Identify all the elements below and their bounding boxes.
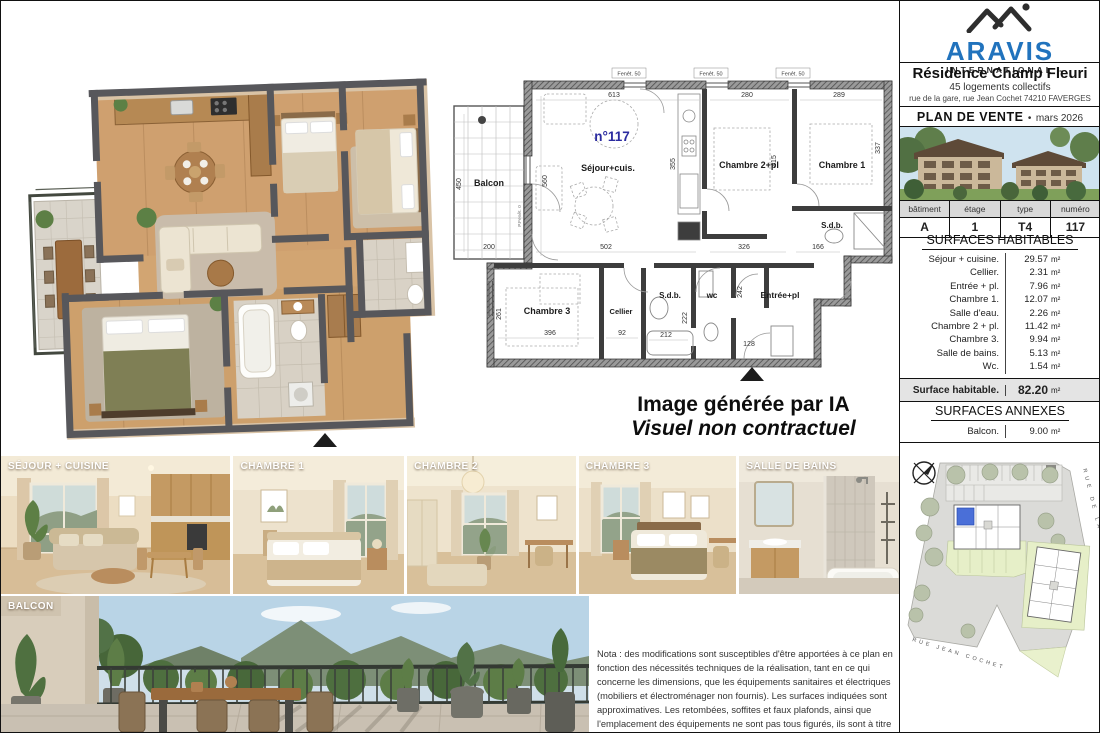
plan2d-kitchen — [678, 94, 700, 240]
room-cellier: Cellier — [610, 307, 633, 316]
divider — [900, 106, 1100, 107]
toilet — [290, 320, 307, 341]
surface-row: Chambre 1.12.07m² — [900, 293, 1100, 306]
porte-fenetre-label: P.Fenêt. 0 — [517, 205, 523, 227]
room-sdb-bottom: S.d.b. — [659, 291, 681, 300]
photo-chambre1: CHAMBRE 1 — [233, 456, 404, 594]
nightstand — [367, 548, 387, 570]
orientation-triangle — [313, 433, 337, 447]
room-chambre2: Chambre 2+pl — [719, 160, 779, 170]
floorplan-3d-body — [26, 82, 435, 438]
unit-info-header: type — [1001, 201, 1051, 218]
photo-sdb-scene — [739, 456, 899, 594]
svg-text:128: 128 — [743, 341, 755, 348]
photo-label: CHAMBRE 2 — [414, 461, 478, 472]
svg-text:326: 326 — [738, 244, 750, 251]
divider — [900, 442, 1100, 443]
floorplan-3d-render — [7, 3, 443, 453]
document-type: PLAN DE VENTE — [917, 110, 1024, 124]
photo-salle-de-bains: SALLE DE BAINS — [739, 456, 899, 594]
svg-text:212: 212 — [660, 332, 672, 339]
bathtub — [238, 303, 277, 378]
photo-label: BALCON — [8, 601, 54, 612]
bed-foot — [427, 564, 487, 586]
unit-info-header: étage — [950, 201, 1000, 218]
divider — [900, 62, 1100, 63]
document-date: mars 2026 — [1036, 113, 1083, 124]
surface-row: Séjour + cuisine.29.57m² — [900, 253, 1100, 266]
svg-text:502: 502 — [600, 244, 612, 251]
photo-label: CHAMBRE 3 — [586, 461, 650, 472]
brand-name: ARAVIS — [900, 38, 1100, 64]
surface-row: Salle de bains.5.13m² — [900, 347, 1100, 360]
room-balcon: Balcon — [474, 178, 504, 188]
svg-text:200: 200 — [483, 244, 495, 251]
room-sejour: Séjour+cuis. — [581, 163, 635, 173]
highlighted-unit — [957, 508, 974, 525]
floorplan-2d: Fenêt. 50 Fenêt. 50 Fenêt. 50 P.Fenêt. 0 — [444, 56, 899, 391]
residence-address: rue de la gare, rue Jean Cochet 74210 FA… — [900, 94, 1100, 103]
window-label: Fenêt. 50 — [617, 72, 640, 78]
room-wc: wc — [706, 291, 718, 300]
unit-number: n°117 — [594, 129, 629, 144]
photo-balcon: BALCON — [1, 596, 589, 732]
sidebar: ARAVIS - INTERNATIONAL - Résidence Champ… — [899, 1, 1100, 732]
document-separator: • — [1028, 113, 1032, 124]
surfaces-annexes-title: SURFACES ANNEXES — [900, 404, 1100, 421]
aravis-logo-icon — [963, 3, 1037, 33]
sofa — [49, 528, 139, 570]
room-sdb-top: S.d.b. — [821, 221, 843, 230]
photo-balcon-scene — [1, 596, 589, 732]
photo-label: SALLE DE BAINS — [746, 461, 836, 472]
ai-disclaimer-line1: Image générée par IA — [591, 393, 896, 417]
photo-chambre1-scene — [233, 456, 404, 594]
surfaces-habitables-title: SURFACES HABITABLES — [900, 233, 1100, 250]
building-a — [946, 505, 1026, 577]
photo-label: CHAMBRE 1 — [240, 461, 304, 472]
surface-row: Chambre 2 + pl.11.42m² — [900, 320, 1100, 333]
nota-text: Nota : des modifications sont susceptibl… — [597, 648, 893, 733]
ai-disclaimer-line2: Visuel non contractuel — [591, 417, 896, 441]
plan2d-window-labels: Fenêt. 50 Fenêt. 50 Fenêt. 50 P.Fenêt. 0 — [517, 68, 810, 227]
residence-name: Résidence Champ Fleuri — [900, 65, 1100, 82]
window-label: Fenêt. 50 — [781, 72, 804, 78]
svg-text:396: 396 — [544, 330, 556, 337]
room-entree: Entrée+pl — [761, 290, 800, 300]
surface-row: Balcon.9.00m² — [900, 425, 1100, 438]
surface-row: Cellier.2.31m² — [900, 266, 1100, 279]
svg-text:613: 613 — [608, 92, 620, 99]
photo-chambre3: CHAMBRE 3 — [579, 456, 737, 594]
toilet — [407, 284, 424, 305]
ai-disclaimer: Image générée par IA Visuel non contract… — [591, 393, 896, 441]
svg-text:355: 355 — [670, 158, 677, 170]
plan-de-vente-bar: PLAN DE VENTE • mars 2026 — [900, 108, 1100, 126]
plan-de-vente-sheet: Fenêt. 50 Fenêt. 50 Fenêt. 50 P.Fenêt. 0 — [0, 0, 1100, 733]
svg-text:450: 450 — [456, 178, 463, 190]
photo-strip: SÉJOUR + CUISINE — [1, 456, 899, 594]
surfaces-habitables-table: Séjour + cuisine.29.57m² Cellier.2.31m² … — [900, 253, 1100, 374]
building-photo — [900, 127, 1099, 200]
svg-text:289: 289 — [833, 92, 845, 99]
nightstand — [613, 540, 629, 560]
window-label: Fenêt. 50 — [699, 72, 722, 78]
svg-text:92: 92 — [618, 330, 626, 337]
surface-row: Salle d'eau.2.26m² — [900, 307, 1100, 320]
svg-text:337: 337 — [875, 142, 882, 154]
bed — [263, 530, 361, 586]
photo-chambre2: CHAMBRE 2 — [407, 456, 576, 594]
plan2d-room-labels: n°117 Balcon Séjour+cuis. Chambre 2+pl C… — [474, 129, 865, 316]
photo-chambre2-scene — [407, 456, 576, 594]
photo-label: SÉJOUR + CUISINE — [8, 461, 109, 472]
photo-chambre3-scene — [579, 456, 737, 594]
unit-info-header: bâtiment — [900, 201, 950, 218]
svg-text:261: 261 — [496, 308, 503, 320]
svg-text:222: 222 — [682, 312, 689, 324]
site-plan: RUE DE LA GARE RUE JEAN COCHET — [900, 445, 1099, 732]
surface-row: Entrée + pl.7.96m² — [900, 280, 1100, 293]
svg-text:166: 166 — [812, 244, 824, 251]
building-b — [1016, 538, 1096, 637]
surface-row: Wc.1.54m² — [900, 360, 1100, 373]
room-chambre1: Chambre 1 — [819, 160, 866, 170]
surface-habitable-total: Surface habitable. 82.20 m² — [900, 378, 1100, 402]
surfaces-annexes-table: Balcon.9.00m² — [900, 425, 1100, 438]
entrance-triangle — [740, 367, 764, 381]
svg-text:560: 560 — [542, 175, 549, 187]
photo-sejour-cuisine: SÉJOUR + CUISINE — [1, 456, 230, 594]
coffee-table — [91, 568, 135, 584]
unit-info-header: numéro — [1051, 201, 1100, 218]
bed — [631, 522, 707, 580]
svg-text:280: 280 — [741, 92, 753, 99]
residence-subtitle: 45 logements collectifs — [900, 82, 1100, 93]
surface-row: Chambre 3.9.94m² — [900, 333, 1100, 346]
plan2d-windows — [489, 83, 810, 316]
photo-sejour-scene — [1, 456, 230, 594]
room-chambre3: Chambre 3 — [524, 306, 571, 316]
svg-text:242: 242 — [737, 286, 744, 298]
